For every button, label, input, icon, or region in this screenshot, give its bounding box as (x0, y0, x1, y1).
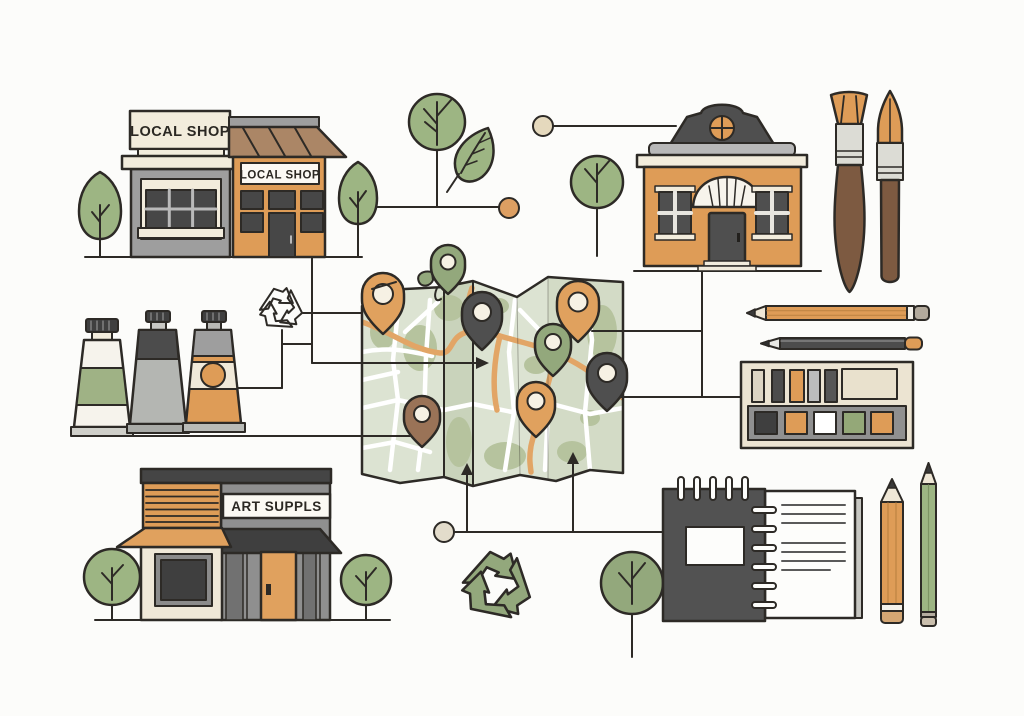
node-beige-icon (434, 522, 454, 542)
mixing-area (842, 369, 897, 399)
pencil-body (780, 338, 905, 349)
scene-svg: LOCAL SHOP LOCAL SHOP (0, 0, 1024, 716)
gray-shop-sign-text: LOCAL SHOP (130, 124, 230, 140)
swatch (752, 370, 764, 402)
roof-band (141, 469, 331, 483)
door (269, 213, 295, 257)
window-sill (138, 228, 224, 238)
paint-pan (843, 412, 865, 434)
window-sill (655, 234, 695, 240)
pencil-band (881, 604, 903, 611)
gray-local-shop: LOCAL SHOP (122, 111, 234, 257)
tube-shoulder (193, 330, 234, 356)
brush-handle (881, 180, 899, 282)
illustration: LOCAL SHOP LOCAL SHOP (0, 0, 1024, 716)
paint-pan (785, 412, 807, 434)
paint-pan (814, 412, 836, 434)
orange-shop-sign-text: LOCAL SHOP (240, 170, 320, 182)
art-shop-sign-text: ART SUPPLS (231, 499, 322, 514)
window (241, 191, 263, 209)
brush-ferrule (877, 143, 903, 180)
swatch (772, 370, 784, 402)
pencil-horizontal-orange-icon (747, 306, 929, 320)
tube-crimp (71, 427, 133, 436)
pencil-body (881, 502, 903, 604)
label-dot (201, 363, 225, 387)
pencil-orange-icon (881, 479, 903, 623)
tube-cap (146, 311, 170, 322)
open-page (765, 491, 855, 618)
art-supplies-shop: ART SUPPLS (117, 469, 341, 620)
dark-awning (221, 529, 341, 553)
pencil-green-icon (921, 463, 936, 626)
paint-palette (741, 362, 913, 448)
swatch (790, 370, 804, 402)
pencil-eraser (914, 306, 929, 320)
window (269, 191, 295, 209)
tube-cap (202, 311, 226, 322)
cover-label (686, 527, 744, 565)
pencil-body (766, 306, 907, 320)
shop-cornice (122, 156, 234, 169)
paint-pan (755, 412, 777, 434)
tube-crimp (183, 423, 245, 432)
roof-ridge (229, 117, 319, 127)
brush-ferrule (836, 124, 863, 165)
window-sill (752, 234, 792, 240)
window (301, 213, 323, 232)
step (698, 266, 756, 271)
window (241, 213, 263, 232)
door-handle (737, 233, 740, 242)
facade-strip (226, 553, 243, 620)
swatch (808, 370, 820, 402)
round-brush-icon (877, 91, 903, 282)
house-ledge (637, 155, 807, 167)
tube-crimp (127, 424, 189, 433)
window (161, 560, 206, 600)
brush-bristles (831, 92, 867, 124)
pencil-eraser (881, 611, 903, 623)
pencil-eraser (905, 338, 922, 350)
facade-strip (303, 553, 316, 620)
paint-tubes (71, 311, 245, 436)
pencil-horizontal-dark-icon (761, 338, 922, 350)
pencil-band (907, 306, 914, 320)
node-orange-icon (499, 198, 519, 218)
tube-label-green (77, 368, 128, 405)
paint-pan (871, 412, 893, 434)
sketchbook (663, 477, 862, 621)
window (301, 191, 323, 209)
door-handle (266, 584, 271, 595)
swatch (825, 370, 837, 402)
pencil-eraser (921, 617, 936, 626)
tube-band-dark (137, 330, 179, 359)
node-beige-icon (533, 116, 553, 136)
